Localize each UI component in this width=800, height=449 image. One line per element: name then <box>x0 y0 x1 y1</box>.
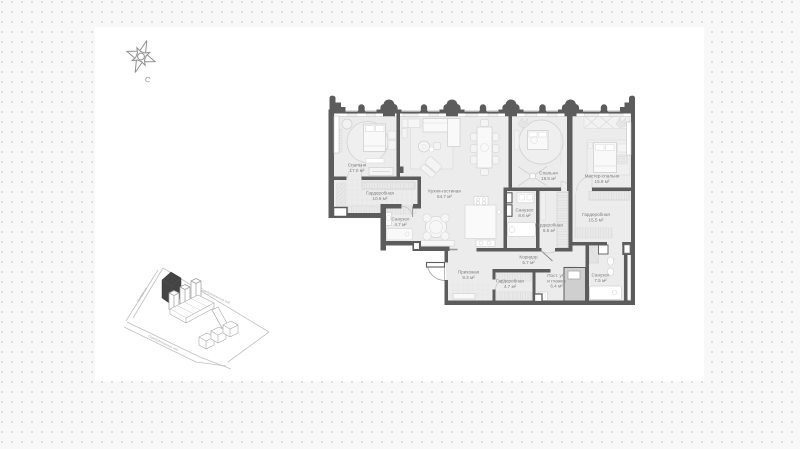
svg-text:Гардеробная: Гардеробная <box>535 223 563 228</box>
svg-text:Санузел: Санузел <box>392 217 410 222</box>
svg-text:Спальня: Спальня <box>539 171 558 176</box>
svg-text:Коридор: Коридор <box>519 255 538 260</box>
svg-text:Гардеробная: Гардеробная <box>496 279 524 284</box>
svg-text:Санузел: Санузел <box>516 208 534 213</box>
svg-text:6.6 м²: 6.6 м² <box>543 228 556 233</box>
svg-text:7.5 м²: 7.5 м² <box>594 278 607 283</box>
svg-text:Пост. уб.: Пост. уб. <box>547 273 566 278</box>
svg-text:Санузел: Санузел <box>592 273 610 278</box>
svg-text:5.7 м²: 5.7 м² <box>522 260 535 265</box>
svg-text:Спальня: Спальня <box>348 163 367 168</box>
svg-text:Кухня-гостиная: Кухня-гостиная <box>428 189 461 194</box>
svg-text:Гардеробная: Гардеробная <box>582 212 610 217</box>
svg-text:15.5 м²: 15.5 м² <box>589 217 604 222</box>
svg-text:4.7 м²: 4.7 м² <box>394 222 407 227</box>
svg-text:18.5 м²: 18.5 м² <box>541 176 556 181</box>
svg-text:4.7 м²: 4.7 м² <box>504 284 517 289</box>
svg-text:17.0 м²: 17.0 м² <box>350 168 365 173</box>
svg-text:Мастер-спальня: Мастер-спальня <box>585 174 620 179</box>
svg-text:Гардеробная: Гардеробная <box>366 191 394 196</box>
svg-text:54.7 м²: 54.7 м² <box>437 194 452 199</box>
svg-text:15.9 м²: 15.9 м² <box>595 179 610 184</box>
svg-text:6.4 м²: 6.4 м² <box>550 284 563 289</box>
svg-text:9.3 м²: 9.3 м² <box>462 275 475 280</box>
svg-text:8.6 м²: 8.6 м² <box>518 213 531 218</box>
svg-text:Прихожая: Прихожая <box>458 270 480 275</box>
svg-text:10.9 м²: 10.9 м² <box>373 196 388 201</box>
svg-text:и глажка: и глажка <box>547 278 566 283</box>
